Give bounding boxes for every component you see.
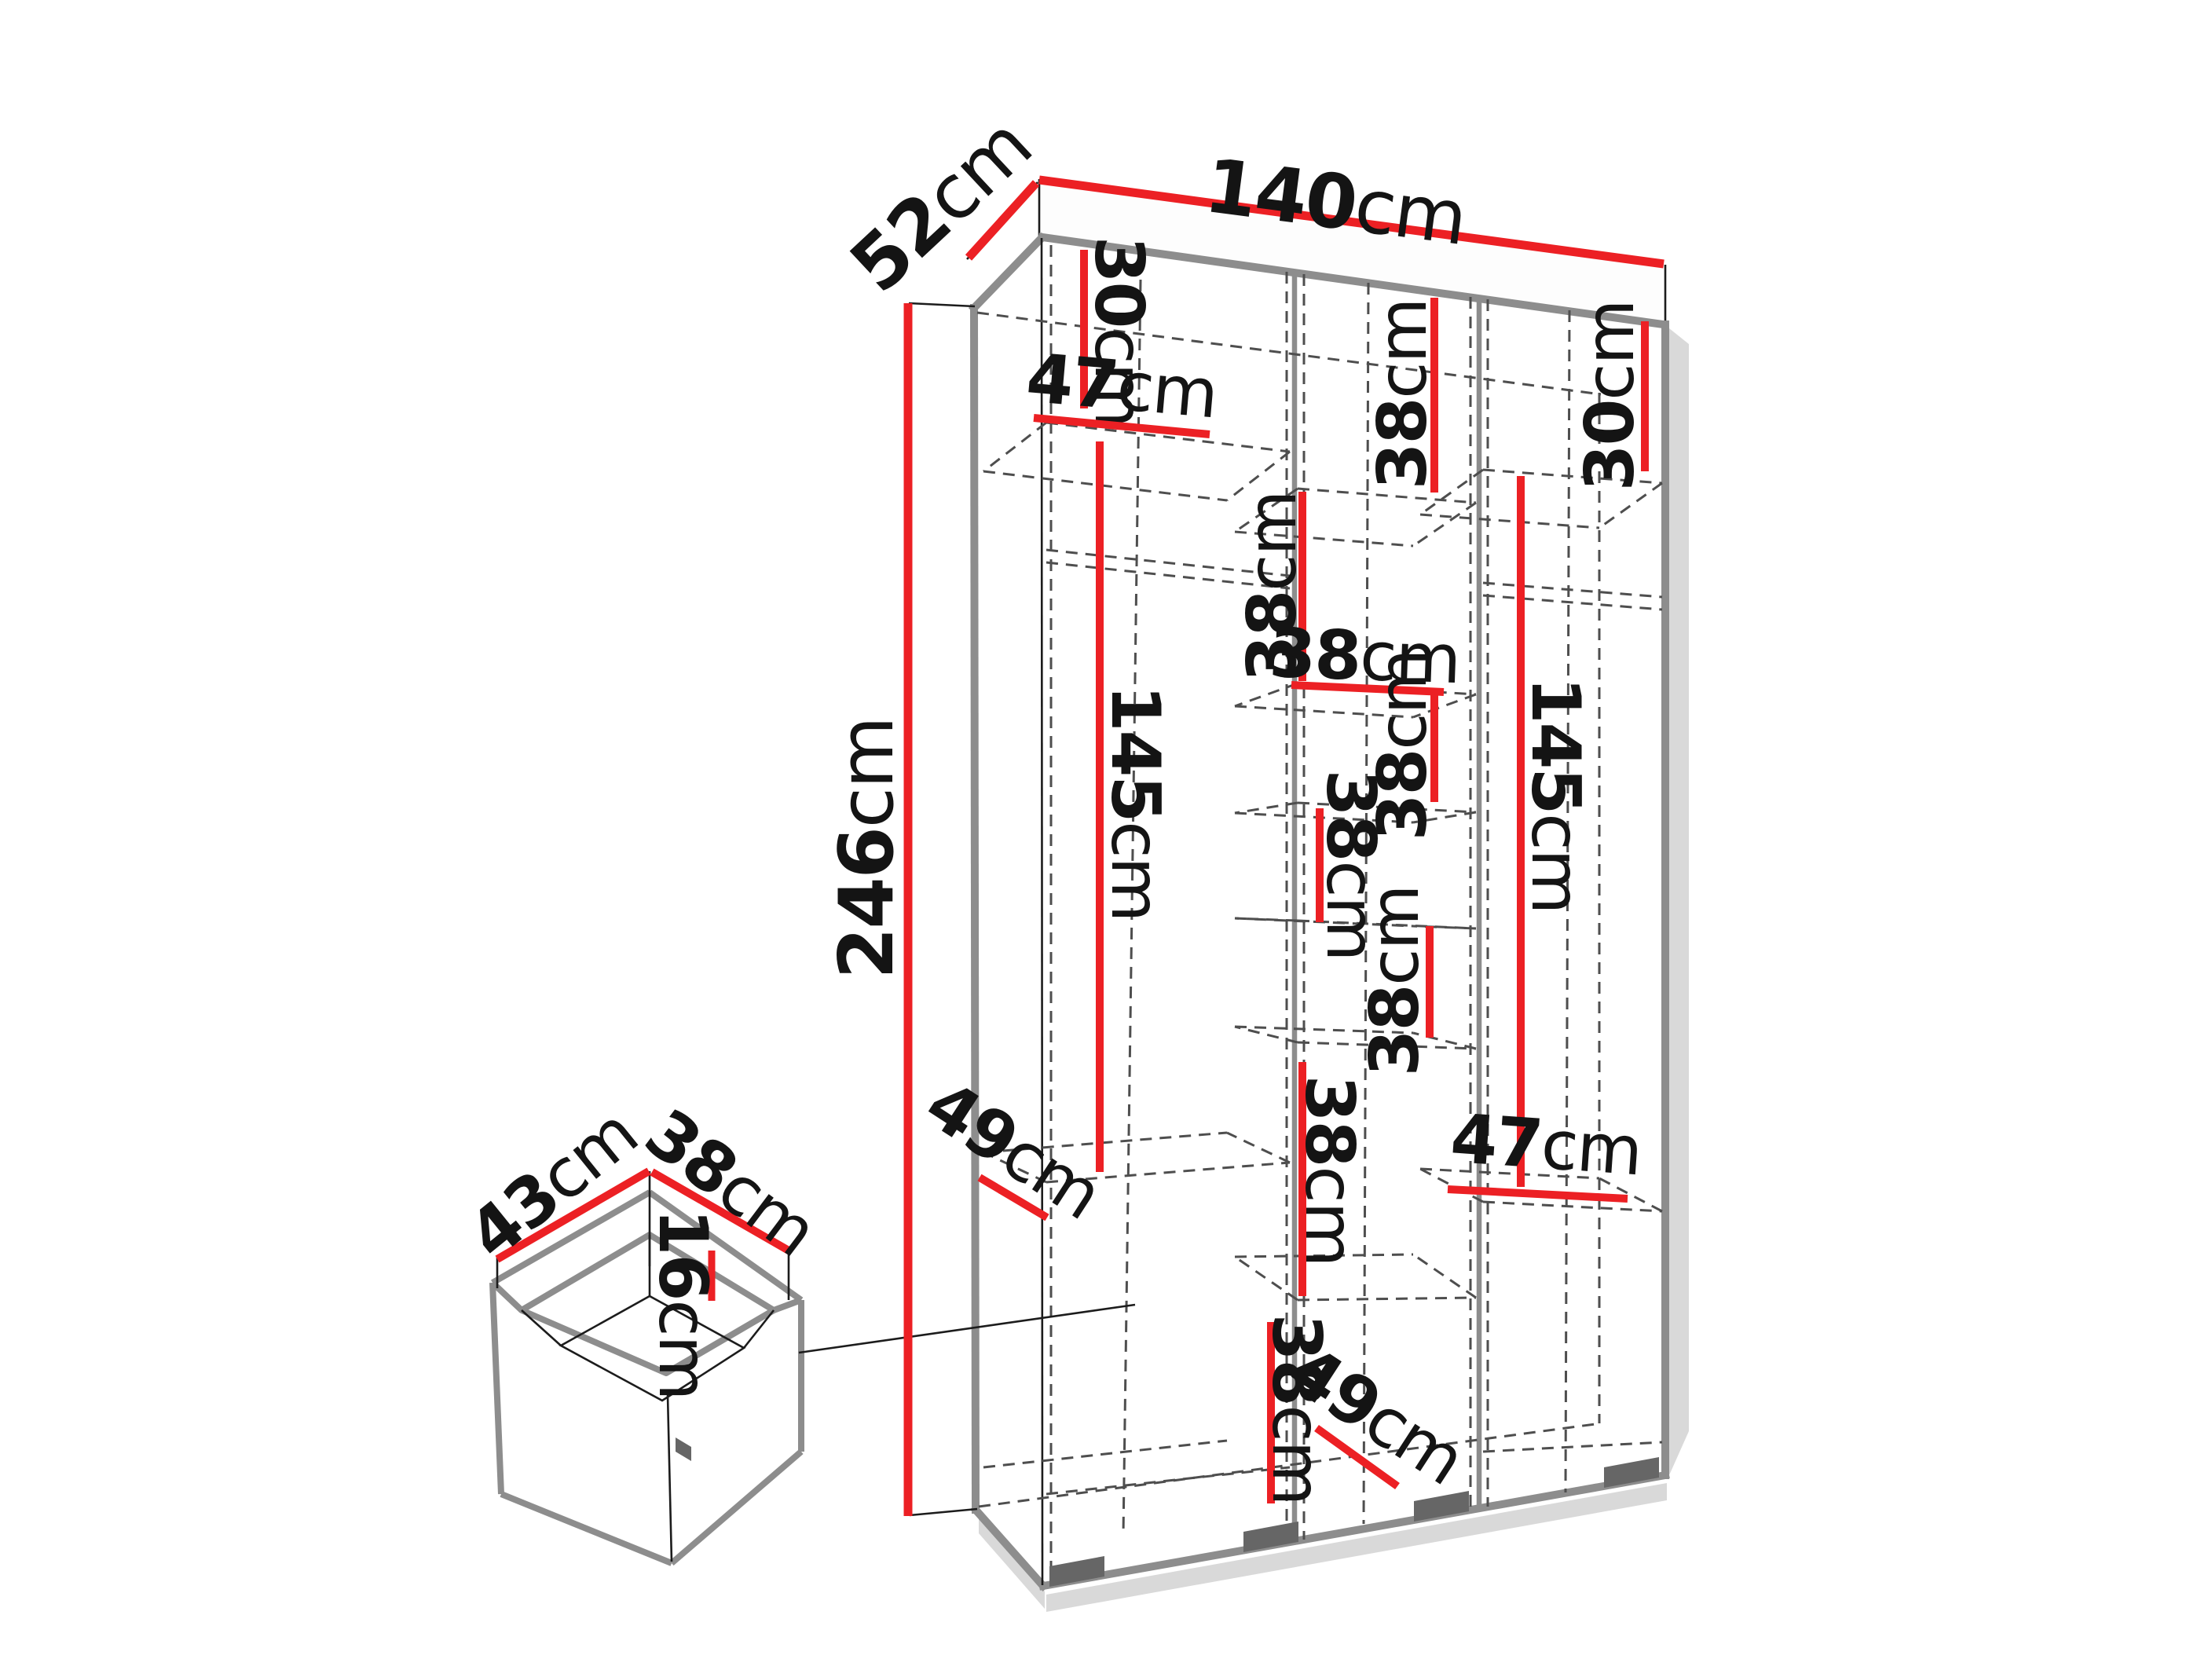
dimension-right-hanging-height: 145cm — [1516, 476, 1595, 1187]
dimension-left-depth: 49cm — [912, 1065, 1115, 1235]
dimension-label-mid-compartment-1: 38cm — [1364, 299, 1442, 490]
dimension-label-left-depth: 49cm — [912, 1065, 1115, 1235]
dimension-label-right-shelf-width: 47cm — [1448, 1100, 1643, 1192]
dimension-label-right-top-height: 30cm — [1571, 301, 1650, 492]
front-bottom-edge — [1043, 1475, 1665, 1586]
height-tick-top — [909, 303, 975, 306]
dimension-mid-compartment-1: 38cm — [1364, 298, 1442, 493]
dimension-right-top-height: 30cm — [1571, 301, 1650, 492]
front-left-edge — [1042, 238, 1042, 1585]
furniture-dimension-diagram: 140cm52cm246cm30cm47cm145cm49cm38cm38cm3… — [0, 0, 2212, 1659]
dimension-left-shelf-width: 47cm — [1024, 339, 1221, 434]
dimension-label-drawer-height: 16cm — [643, 1209, 722, 1400]
wardrobe-diagram-svg: 140cm52cm246cm30cm47cm145cm49cm38cm38cm3… — [0, 0, 2212, 1659]
dimension-mid-compartment-6: 38cm — [1290, 1062, 1368, 1296]
dimension-overall-depth: 52cm — [834, 102, 1048, 309]
left-panel-back-edge — [974, 308, 976, 1510]
left-panel-top-edge — [974, 238, 1042, 308]
dimension-label-mid-compartment-5: 38cm — [1356, 886, 1434, 1077]
drawer-leader-line — [799, 1305, 1135, 1353]
dimension-label-overall-height: 246cm — [824, 717, 910, 979]
bottom-shadow — [1046, 1483, 1667, 1612]
dimension-overall-height: 246cm — [824, 303, 910, 1516]
height-tick-bottom — [910, 1509, 977, 1515]
right-side-shadow — [1669, 328, 1689, 1475]
dimension-label-mid-compartment-6: 38cm — [1290, 1075, 1368, 1266]
right-column-shelves — [1420, 470, 1662, 1452]
dimension-label-left-shelf-width: 47cm — [1024, 339, 1221, 434]
dimension-drawer-height: 16cm — [643, 1209, 722, 1400]
dimension-left-hanging-height: 145cm — [1096, 441, 1174, 1172]
dimension-mid-compartment-5: 38cm — [1356, 886, 1434, 1077]
dimension-label-left-hanging-height: 145cm — [1096, 685, 1174, 921]
left-panel-bottom-edge — [976, 1510, 1043, 1586]
dimension-label-right-hanging-height: 145cm — [1516, 677, 1595, 914]
